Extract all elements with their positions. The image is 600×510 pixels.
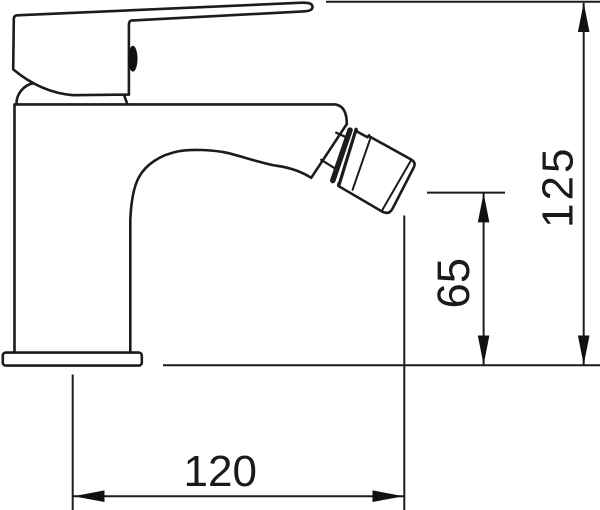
svg-text:65: 65	[428, 258, 479, 309]
svg-text:125: 125	[534, 146, 583, 228]
svg-text:120: 120	[184, 447, 257, 496]
